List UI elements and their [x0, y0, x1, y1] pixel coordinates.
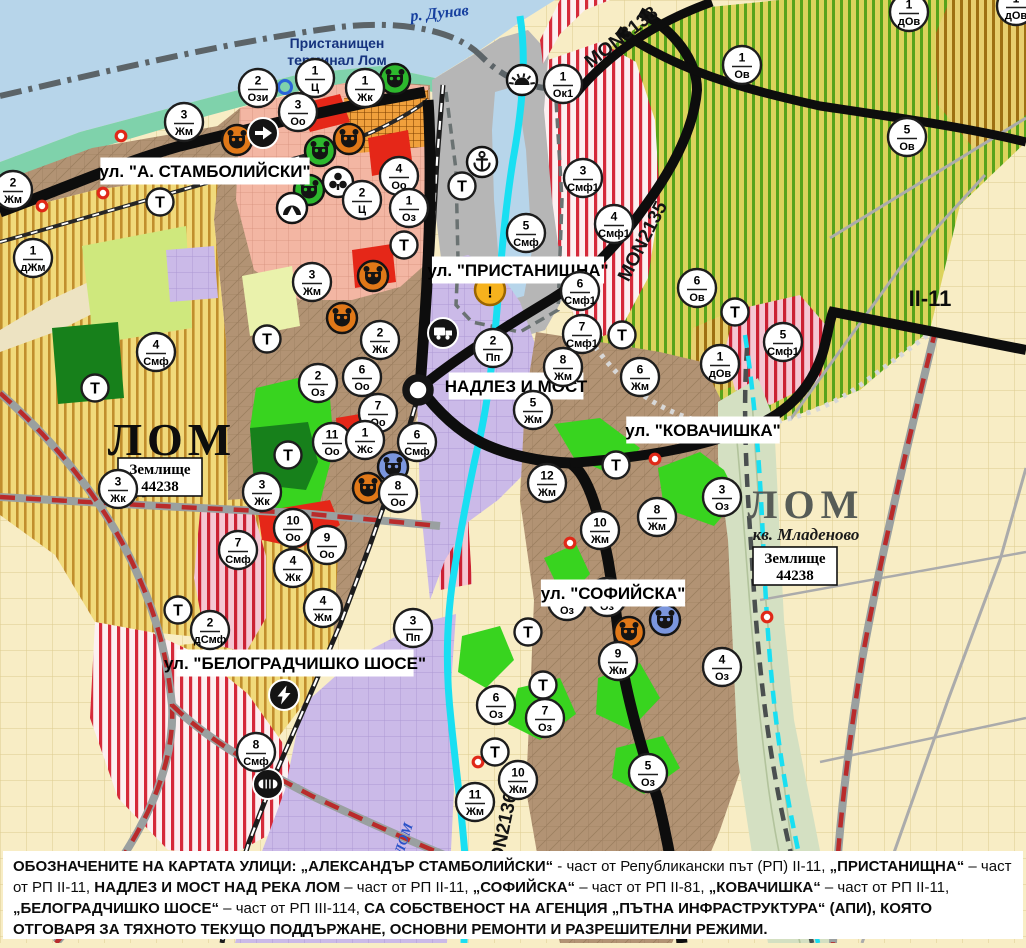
svg-text:3: 3: [115, 475, 122, 489]
zone-marker-4-Оз: 4Оз: [703, 648, 741, 686]
svg-text:7: 7: [235, 536, 242, 550]
zone-marker-1-Жс: 1Жс: [346, 421, 384, 459]
svg-text:7: 7: [542, 704, 549, 718]
svg-text:Т: Т: [262, 332, 272, 349]
note-segment: НАДЛЕЗ И МОСТ НАД РЕКА ЛОМ: [94, 879, 340, 896]
svg-text:Пп: Пп: [486, 352, 501, 364]
svg-text:Т: Т: [538, 678, 548, 695]
svg-text:Оз: Оз: [715, 671, 730, 683]
transport-t-marker: Т: [482, 739, 509, 766]
street-label: ул. "СОФИЙСКА": [541, 580, 686, 607]
svg-text:Оз: Оз: [560, 605, 575, 617]
note-segment: – част от РП II-81,: [575, 879, 709, 896]
svg-text:6: 6: [694, 274, 701, 288]
svg-text:Оз: Оз: [641, 777, 656, 789]
svg-text:Жм: Жм: [313, 612, 332, 624]
station-icon: [253, 769, 283, 799]
zone-marker-2-дСмф: 2дСмф: [191, 611, 229, 649]
transport-t-marker: Т: [722, 299, 749, 326]
svg-text:2: 2: [255, 74, 262, 88]
transport-t-marker: Т: [165, 597, 192, 624]
svg-text:5: 5: [645, 759, 652, 773]
zone-marker-1-Ов: 1Ов: [723, 46, 761, 84]
svg-text:Оо: Оо: [285, 532, 301, 544]
svg-text:11: 11: [469, 788, 482, 802]
svg-text:ул. "СОФИЙСКА": ул. "СОФИЙСКА": [541, 584, 686, 603]
street-label: ул. "А. СТАМБОЛИЙСКИ": [99, 158, 310, 185]
zone-marker-3-Оз: 3Оз: [703, 478, 741, 516]
svg-text:Смф1: Смф1: [567, 182, 599, 194]
zone-marker-11-Жм: 11Жм: [456, 783, 494, 821]
truck-icon: [428, 318, 458, 348]
svg-text:10: 10: [286, 514, 300, 528]
svg-text:9: 9: [615, 647, 622, 661]
svg-text:4: 4: [290, 554, 297, 568]
transport-t-marker: Т: [275, 442, 302, 469]
zone-marker-4-Жк: 4Жк: [274, 549, 312, 587]
note-segment: „СОФИЙСКА“: [473, 879, 575, 896]
zone-pp-lavender-small: [166, 246, 218, 302]
svg-text:Жс: Жс: [356, 444, 373, 456]
zone-marker-6-Ов: 6Ов: [678, 269, 716, 307]
poi-dot: [37, 201, 47, 211]
svg-text:Т: Т: [457, 179, 467, 196]
svg-text:4: 4: [153, 338, 160, 352]
svg-text:3: 3: [259, 478, 266, 492]
zone-marker-2-Ози: 2Ози: [239, 69, 277, 107]
transport-t-marker: Т: [147, 189, 174, 216]
svg-text:Жм: Жм: [302, 286, 321, 298]
transport-t-marker: Т: [254, 326, 281, 353]
transport-t-marker: Т: [603, 452, 630, 479]
zone-marker-12-Жм: 12Жм: [528, 464, 566, 502]
zone-marker-1-Жк: 1Жк: [346, 69, 384, 107]
arrow-icon: [248, 118, 278, 148]
svg-text:Ц: Ц: [311, 82, 319, 94]
anchor-icon: [467, 147, 497, 177]
svg-text:4: 4: [396, 162, 403, 176]
svg-text:Смф1: Смф1: [598, 228, 630, 240]
note-segment: „КОВАЧИШКА“: [709, 879, 821, 896]
svg-text:!: !: [487, 285, 492, 302]
svg-text:ул. "А. СТАМБОЛИЙСКИ": ул. "А. СТАМБОЛИЙСКИ": [99, 162, 310, 181]
note-segment: „БЕЛОГРАДЧИШКО ШОСЕ“: [13, 900, 219, 917]
svg-text:Оо: Оо: [319, 549, 335, 561]
svg-text:3: 3: [181, 108, 188, 122]
svg-text:2: 2: [315, 369, 322, 383]
svg-text:1: 1: [739, 51, 746, 65]
svg-text:2: 2: [377, 326, 384, 340]
zone-marker-2-Жк: 2Жк: [361, 321, 399, 359]
zone-marker-3-Смф1: 3Смф1: [564, 159, 602, 197]
map-label: ЛОМ: [748, 482, 865, 527]
zone-marker-5-Смф: 5Смф: [507, 214, 545, 252]
zone-marker-2-Оз: 2Оз: [299, 364, 337, 402]
svg-text:дОв: дОв: [1005, 10, 1026, 22]
svg-text:7: 7: [579, 320, 586, 334]
svg-text:5: 5: [904, 123, 911, 137]
svg-text:Оо: Оо: [324, 446, 340, 458]
svg-text:Жк: Жк: [356, 92, 373, 104]
svg-text:1: 1: [30, 244, 37, 258]
note-segment: - част от Републикански път (РП) II-11,: [553, 858, 829, 875]
svg-text:1: 1: [560, 70, 567, 84]
zone-marker-4-Жм: 4Жм: [304, 589, 342, 627]
zone-marker-2-Жм: 2Жм: [0, 171, 32, 209]
svg-text:Жм: Жм: [553, 371, 572, 383]
svg-text:1: 1: [717, 350, 724, 364]
svg-text:3: 3: [309, 268, 316, 282]
svg-text:6: 6: [414, 428, 421, 442]
svg-text:Жк: Жк: [253, 496, 270, 508]
svg-text:Смф: Смф: [513, 237, 539, 249]
svg-text:5: 5: [530, 396, 537, 410]
svg-text:Оо: Оо: [390, 497, 406, 509]
svg-text:Смф: Смф: [243, 756, 269, 768]
note-segment: – част от РП III-114,: [219, 900, 364, 917]
svg-text:Жк: Жк: [371, 344, 388, 356]
map-label: II-11: [909, 286, 952, 311]
svg-text:Жм: Жм: [465, 806, 484, 818]
zone-marker-6-Жм: 6Жм: [621, 358, 659, 396]
svg-text:Т: Т: [490, 745, 500, 762]
note-segment: „ПРИСТАНИЩНА“: [830, 858, 965, 875]
poi-dot: [473, 757, 483, 767]
svg-text:Жм: Жм: [647, 521, 666, 533]
svg-text:дОв: дОв: [709, 368, 732, 380]
tunnel-icon: [277, 193, 307, 223]
transport-t-marker: Т: [515, 619, 542, 646]
monument-icon: [334, 124, 364, 154]
svg-text:3: 3: [719, 483, 726, 497]
zone-marker-2-Пп: 2Пп: [474, 329, 512, 367]
monument-icon: [327, 303, 357, 333]
svg-text:Землище: Землище: [129, 462, 191, 478]
svg-text:Жм: Жм: [174, 126, 193, 138]
svg-text:дОв: дОв: [898, 16, 921, 28]
zone-marker-8-Жм: 8Жм: [638, 498, 676, 536]
svg-text:Жм: Жм: [3, 194, 22, 206]
zone-marker-1-дЖм: 1дЖм: [14, 239, 52, 277]
svg-text:Смф: Смф: [404, 446, 430, 458]
svg-text:4: 4: [611, 210, 618, 224]
svg-text:44238: 44238: [141, 479, 179, 495]
svg-text:Ози: Ози: [248, 92, 269, 104]
zone-marker-7-Смф1: 7Смф1: [563, 315, 601, 353]
svg-text:Т: Т: [90, 381, 100, 398]
zone-marker-5-Смф1: 5Смф1: [764, 323, 802, 361]
svg-text:4: 4: [320, 594, 327, 608]
svg-text:10: 10: [511, 766, 525, 780]
roundabout-icon: [406, 378, 430, 402]
map-label: Пристанищен: [290, 35, 385, 51]
legend-note: ОБОЗНАЧЕНИТЕ НА КАРТАТА УЛИЦИ: „АЛЕКСАНД…: [3, 851, 1023, 939]
transport-t-marker: Т: [449, 173, 476, 200]
map-canvas[interactable]: !ОзОзр. ДунавПристанищентерминал ЛомЛОМЛ…: [0, 0, 1026, 943]
svg-text:1: 1: [1013, 0, 1020, 6]
zoning-map: !ОзОзр. ДунавПристанищентерминал ЛомЛОМЛ…: [0, 0, 1026, 943]
zone-marker-5-Оз: 5Оз: [629, 754, 667, 792]
svg-text:Т: Т: [611, 458, 621, 475]
svg-text:1: 1: [362, 426, 369, 440]
svg-text:Жк: Жк: [109, 493, 126, 505]
svg-text:3: 3: [580, 164, 587, 178]
zone-marker-10-Жм: 10Жм: [499, 761, 537, 799]
poi-dot: [565, 538, 575, 548]
svg-text:Т: Т: [173, 603, 183, 620]
zone-marker-7-Смф: 7Смф: [219, 531, 257, 569]
zone-marker-1-Оз: 1Оз: [390, 189, 428, 227]
svg-text:Землище: Землище: [764, 551, 826, 567]
note-segment: – част от РП II-11,: [821, 879, 949, 896]
svg-text:1: 1: [906, 0, 913, 12]
svg-text:ул. "КОВАЧИШКА": ул. "КОВАЧИШКА": [625, 421, 781, 440]
zone-marker-3-Жк: 3Жк: [243, 473, 281, 511]
transport-t-marker: Т: [391, 232, 418, 259]
svg-text:ул. "БЕЛОГРАДЧИШКО ШОСЕ": ул. "БЕЛОГРАДЧИШКО ШОСЕ": [164, 654, 426, 673]
zone-marker-1-дОв: 1дОв: [701, 345, 739, 383]
sun-icon: [507, 65, 537, 95]
note-segment: ОБОЗНАЧЕНИТЕ НА КАРТАТА УЛИЦИ: „АЛЕКСАНД…: [13, 858, 553, 875]
svg-text:1: 1: [406, 194, 413, 208]
zone-marker-5-Ов: 5Ов: [888, 118, 926, 156]
zone-marker-10-Оо: 10Оо: [274, 509, 312, 547]
zone-marker-3-Жм: 3Жм: [165, 103, 203, 141]
svg-text:Жм: Жм: [537, 487, 556, 499]
svg-text:Оз: Оз: [715, 501, 730, 513]
zone-marker-5-Жм: 5Жм: [514, 391, 552, 429]
poi-dot: [116, 131, 126, 141]
svg-text:2: 2: [359, 186, 366, 200]
zone-marker-4-Смф: 4Смф: [137, 333, 175, 371]
svg-text:Смф1: Смф1: [564, 295, 596, 307]
svg-text:Жм: Жм: [630, 381, 649, 393]
svg-text:5: 5: [780, 328, 787, 342]
svg-text:Смф1: Смф1: [566, 338, 598, 350]
svg-text:2: 2: [207, 616, 214, 630]
street-label: ул. "КОВАЧИШКА": [625, 417, 781, 444]
svg-text:Жм: Жм: [608, 665, 627, 677]
svg-text:Оз: Оз: [402, 212, 417, 224]
svg-text:5: 5: [523, 219, 530, 233]
zone-marker-6-Оз: 6Оз: [477, 686, 515, 724]
svg-text:Т: Т: [523, 625, 533, 642]
svg-text:3: 3: [410, 614, 417, 628]
zone-marker-8-Жм: 8Жм: [544, 348, 582, 386]
transport-t-marker: Т: [82, 375, 109, 402]
svg-text:Жм: Жм: [523, 414, 542, 426]
zone-marker-8-Смф: 8Смф: [237, 733, 275, 771]
svg-text:8: 8: [560, 353, 567, 367]
svg-text:8: 8: [253, 738, 260, 752]
zone-marker-7-Оз: 7Оз: [526, 699, 564, 737]
zone-marker-10-Жм: 10Жм: [581, 511, 619, 549]
svg-text:Жк: Жк: [284, 572, 301, 584]
svg-text:6: 6: [577, 277, 584, 291]
poi-dot: [98, 188, 108, 198]
svg-text:10: 10: [593, 516, 607, 530]
street-label: ул. "БЕЛОГРАДЧИШКО ШОСЕ": [164, 650, 426, 677]
svg-text:8: 8: [654, 503, 661, 517]
svg-text:Ок1: Ок1: [553, 88, 573, 100]
note-segment: – част от РП II-11,: [340, 879, 473, 896]
zone-marker-6-Оо: 6Оо: [343, 358, 381, 396]
svg-text:3: 3: [295, 98, 302, 112]
svg-text:Ов: Ов: [734, 69, 750, 81]
svg-text:Т: Т: [283, 448, 293, 465]
svg-text:7: 7: [375, 399, 382, 413]
svg-text:Т: Т: [155, 195, 165, 212]
zone-marker-4-Смф1: 4Смф1: [595, 205, 633, 243]
zone-marker-3-Оо: 3Оо: [279, 93, 317, 131]
zone-marker-1-дОв: 1дОв: [890, 0, 928, 31]
zone-marker-1-Ц: 1Ц: [296, 59, 334, 97]
svg-text:Смф: Смф: [225, 554, 251, 566]
transport-t-marker: Т: [530, 672, 557, 699]
svg-text:1: 1: [362, 74, 369, 88]
zemlishte-box: Землище44238: [753, 547, 837, 585]
svg-text:44238: 44238: [776, 568, 814, 584]
zone-marker-3-Жм: 3Жм: [293, 263, 331, 301]
svg-text:Ов: Ов: [689, 292, 705, 304]
lightning-icon: [269, 680, 299, 710]
svg-text:1: 1: [312, 64, 319, 78]
svg-text:Оз: Оз: [311, 387, 326, 399]
svg-text:дЖм: дЖм: [20, 262, 45, 274]
svg-text:2: 2: [10, 176, 17, 190]
svg-text:4: 4: [719, 653, 726, 667]
svg-text:Т: Т: [399, 238, 409, 255]
svg-text:дСмф: дСмф: [194, 634, 227, 646]
svg-text:Оз: Оз: [489, 709, 504, 721]
svg-text:Пп: Пп: [406, 632, 421, 644]
svg-text:12: 12: [540, 469, 554, 483]
svg-text:Смф: Смф: [143, 356, 169, 368]
svg-text:Т: Т: [730, 305, 740, 322]
zone-marker-2-Ц: 2Ц: [343, 181, 381, 219]
svg-text:2: 2: [490, 334, 497, 348]
zone-marker-6-Смф: 6Смф: [398, 423, 436, 461]
svg-text:Оз: Оз: [538, 722, 553, 734]
svg-text:Смф1: Смф1: [767, 346, 799, 358]
svg-text:6: 6: [637, 363, 644, 377]
svg-text:Жм: Жм: [590, 534, 609, 546]
svg-text:Оо: Оо: [290, 116, 306, 128]
poi-dot: [762, 612, 772, 622]
monument-icon: [650, 605, 680, 635]
monument-icon: [358, 261, 388, 291]
svg-text:Оо: Оо: [354, 381, 370, 393]
svg-text:9: 9: [324, 531, 331, 545]
zone-marker-8-Оо: 8Оо: [379, 474, 417, 512]
zone-marker-1-Ок1: 1Ок1: [544, 65, 582, 103]
svg-text:Жм: Жм: [508, 784, 527, 796]
zone-marker-6-Смф1: 6Смф1: [561, 272, 599, 310]
svg-text:Ов: Ов: [899, 141, 915, 153]
svg-text:11: 11: [326, 428, 339, 442]
transport-t-marker: Т: [609, 322, 636, 349]
svg-text:6: 6: [359, 363, 366, 377]
zone-marker-3-Жк: 3Жк: [99, 470, 137, 508]
zone-marker-3-Пп: 3Пп: [394, 609, 432, 647]
zone-marker-9-Оо: 9Оо: [308, 526, 346, 564]
svg-text:6: 6: [493, 691, 500, 705]
svg-text:8: 8: [395, 479, 402, 493]
svg-text:Ц: Ц: [358, 204, 366, 216]
map-label: кв. Младеново: [753, 525, 860, 544]
zone-marker-9-Жм: 9Жм: [599, 642, 637, 680]
svg-text:Т: Т: [617, 328, 627, 345]
poi-dot: [650, 454, 660, 464]
